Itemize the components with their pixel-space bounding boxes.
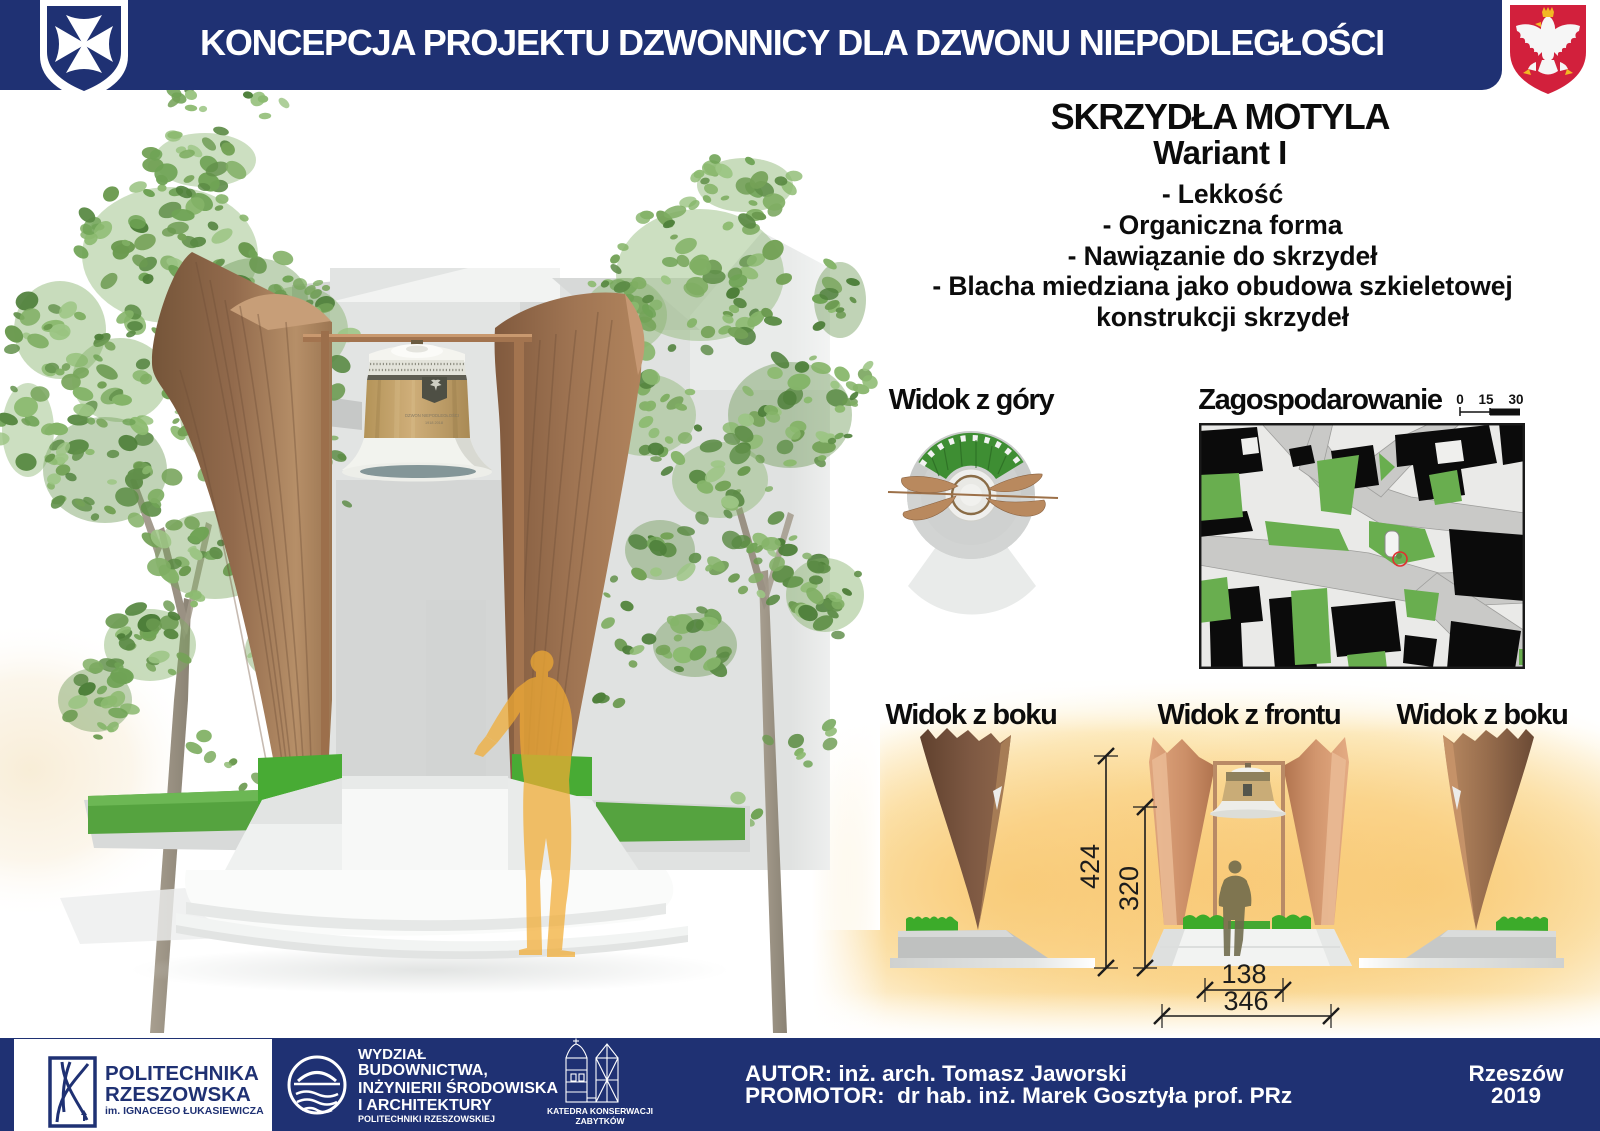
svg-text:30: 30	[1508, 392, 1523, 407]
svg-text:346: 346	[1223, 986, 1268, 1016]
svg-text:1918 2018: 1918 2018	[425, 421, 443, 425]
svg-text:DZWON NIEPODLEGŁOŚCI: DZWON NIEPODLEGŁOŚCI	[405, 413, 459, 418]
svg-text:0: 0	[1456, 392, 1464, 407]
svg-text:15: 15	[1478, 392, 1494, 407]
svg-text:138: 138	[1221, 959, 1266, 989]
svg-text:320: 320	[1114, 866, 1144, 911]
svg-text:424: 424	[1075, 844, 1105, 889]
